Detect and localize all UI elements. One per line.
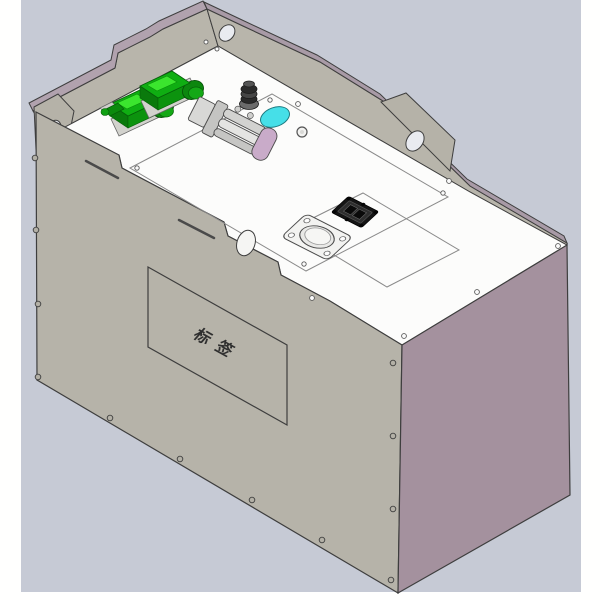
aux-dome (101, 109, 109, 116)
screw (310, 296, 315, 301)
gland-top (244, 81, 255, 87)
rivet (33, 227, 39, 233)
cad-render: 标签 (0, 0, 600, 600)
rivet (319, 537, 325, 543)
rivet (32, 155, 38, 161)
screw (447, 179, 452, 184)
margin-left (0, 0, 21, 600)
screw (268, 98, 272, 102)
margin-bottom (0, 592, 600, 600)
rivet (390, 506, 396, 512)
screw (441, 191, 445, 195)
rivet (35, 301, 41, 307)
small-ring-hole (297, 127, 307, 137)
rivet (107, 415, 113, 421)
screw (556, 244, 561, 249)
screw (135, 166, 139, 170)
screw (475, 290, 480, 295)
screw (204, 40, 208, 44)
screw (296, 102, 301, 107)
screw (402, 334, 407, 339)
rivet (249, 497, 255, 503)
cad-viewport: 标签 (0, 0, 600, 600)
rivet (390, 433, 396, 439)
ring-inner (300, 130, 304, 134)
screw (302, 262, 306, 266)
rivet (390, 360, 396, 366)
rivet (388, 577, 394, 583)
rivet (177, 456, 183, 462)
screw (215, 47, 219, 51)
margin-right (581, 0, 600, 600)
rivet (35, 374, 41, 380)
